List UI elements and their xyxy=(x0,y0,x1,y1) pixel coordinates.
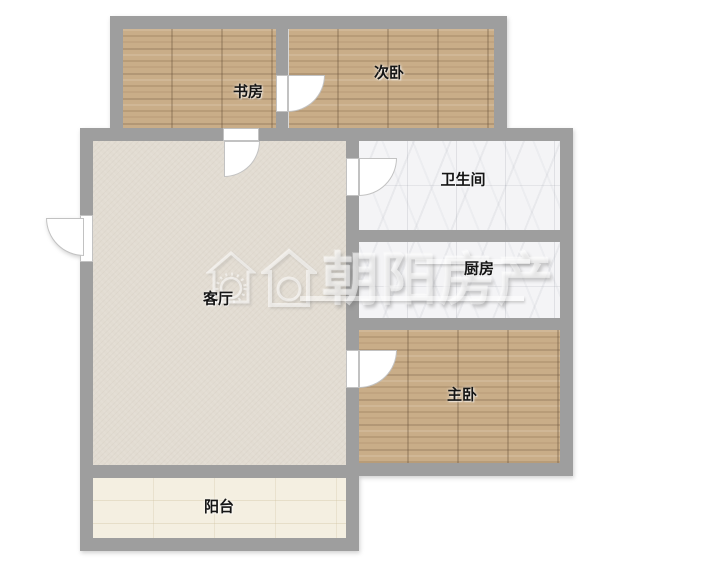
floor-plan: 朝阳房产 书房 次卧 卫生间 厨房 主卧 客厅 阳台 xyxy=(0,0,720,563)
wall-horizontal-left xyxy=(80,128,223,141)
entrance-door-arc xyxy=(46,218,84,256)
room-kitchen xyxy=(359,242,560,318)
room-label-living-room: 客厅 xyxy=(203,288,233,309)
wall-left-upper xyxy=(80,128,93,215)
wall-horizontal-right xyxy=(259,128,573,141)
wall-central-upper xyxy=(346,128,359,158)
wall-kitchen-master xyxy=(346,318,573,330)
wall-living-balcony xyxy=(80,465,359,478)
bathroom-door-leaf xyxy=(346,158,359,196)
wall-study-divider-upper xyxy=(276,29,288,75)
wall-balcony-bottom xyxy=(80,538,359,551)
master-bedroom-door-leaf xyxy=(346,350,359,388)
room-study xyxy=(123,29,276,128)
room-label-bathroom: 卫生间 xyxy=(440,169,485,190)
wall-second-bedroom-right xyxy=(494,16,507,141)
watermark-line-lower xyxy=(300,296,524,301)
wall-master-bottom xyxy=(346,463,573,476)
wall-right xyxy=(560,128,573,476)
second-bedroom-door-leaf xyxy=(276,75,288,112)
room-label-master-bedroom: 主卧 xyxy=(447,384,477,405)
floor-plan-canvas: 朝阳房产 书房 次卧 卫生间 厨房 主卧 客厅 阳台 xyxy=(0,0,720,563)
study-door-leaf xyxy=(223,128,259,141)
room-label-study: 书房 xyxy=(233,81,263,102)
room-label-balcony: 阳台 xyxy=(204,496,234,517)
wall-study-left xyxy=(110,16,123,141)
room-label-kitchen: 厨房 xyxy=(464,258,494,279)
wall-top xyxy=(110,16,507,29)
wall-left-lower xyxy=(80,262,93,551)
wall-bathroom-kitchen xyxy=(346,230,573,242)
room-label-second-bedroom: 次卧 xyxy=(374,62,404,83)
